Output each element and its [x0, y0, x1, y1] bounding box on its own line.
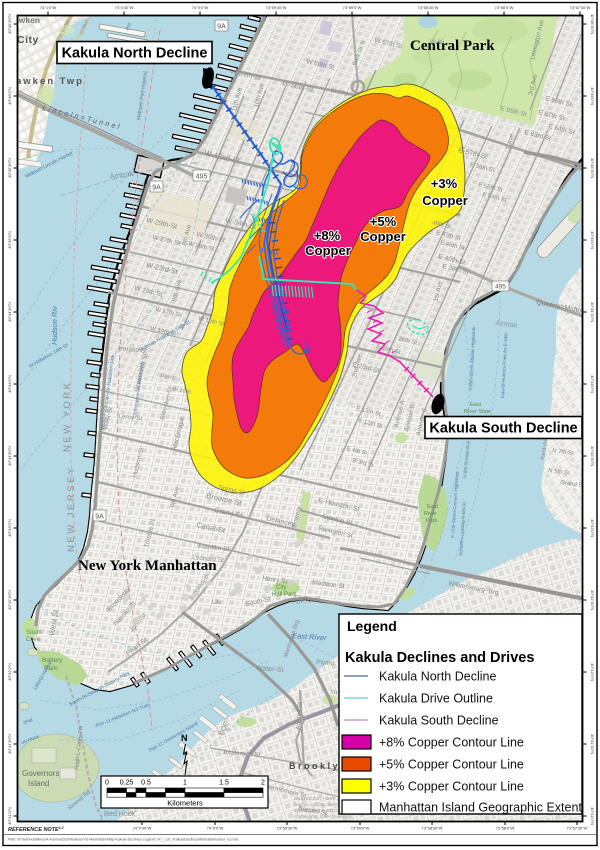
svg-text:40°45'30"N: 40°45'30"N [7, 158, 12, 178]
svg-text:Red Hook: Red Hook [104, 811, 136, 818]
svg-text:40°41'30"N: 40°41'30"N [590, 734, 595, 754]
svg-text:74°0'30"W: 74°0'30"W [133, 826, 152, 831]
svg-text:9A: 9A [152, 185, 161, 192]
svg-text:40°44'30"N: 40°44'30"N [590, 302, 595, 322]
svg-text:Hall Park: Hall Park [272, 592, 297, 598]
svg-text:40°43'0"N: 40°43'0"N [590, 519, 595, 537]
svg-text:40°42'0"N: 40°42'0"N [590, 663, 595, 681]
svg-text:40°42'0"N: 40°42'0"N [7, 663, 12, 681]
svg-text:Park: Park [426, 518, 438, 524]
svg-text:City: City [276, 585, 286, 591]
svg-text:+3% Copper Contour Line: +3% Copper Contour Line [379, 780, 524, 794]
svg-text:Copper: Copper [422, 193, 468, 208]
svg-text:Kakula North Decline: Kakula North Decline [62, 46, 208, 62]
svg-text:Kilometers: Kilometers [167, 799, 203, 808]
svg-text:East: East [470, 402, 481, 408]
svg-text:Sources: Esri, HERE: Sources: Esri, HERE [294, 796, 336, 801]
svg-text:REFERENCE NOTE1,2: REFERENCE NOTE1,2 [8, 826, 64, 833]
svg-text:40°41'30"N: 40°41'30"N [7, 734, 12, 754]
svg-text:East: East [427, 504, 438, 510]
svg-text:Kakula Declines and Drives: Kakula Declines and Drives [345, 650, 534, 666]
svg-text:+5%: +5% [370, 214, 397, 229]
svg-text:1: 1 [183, 780, 187, 787]
svg-text:Central Park: Central Park [410, 38, 495, 54]
svg-text:73°59'30"W: 73°59'30"W [277, 826, 298, 831]
svg-text:Legend: Legend [347, 618, 397, 634]
svg-text:0.25: 0.25 [120, 780, 134, 787]
svg-text:Kakula Drive Outline: Kakula Drive Outline [379, 692, 493, 706]
svg-text:495: 495 [196, 174, 208, 181]
svg-text:73°59'0"W: 73°59'0"W [351, 826, 370, 831]
svg-text:+8% Copper Contour Line: +8% Copper Contour Line [379, 736, 524, 750]
svg-text:Garmin, USGS, Intermap: Garmin, USGS, Intermap [294, 802, 345, 807]
svg-text:40°44'0"N: 40°44'0"N [590, 375, 595, 393]
svg-text:40°46'30"N: 40°46'30"N [590, 14, 595, 34]
svg-text:N: N [181, 733, 188, 743]
svg-text:40°43'30"N: 40°43'30"N [7, 446, 12, 466]
svg-text:Kakula North Decline: Kakula North Decline [379, 670, 496, 684]
svg-text:73°57'30"W: 73°57'30"W [567, 826, 588, 831]
svg-text:NEW JERSEY: NEW JERSEY [66, 465, 77, 552]
svg-text:Copper: Copper [305, 243, 351, 258]
svg-text:73°59'30"W: 73°59'30"W [266, 5, 287, 10]
svg-text:40°44'0"N: 40°44'0"N [7, 375, 12, 393]
svg-text:40°42'30"N: 40°42'30"N [7, 590, 12, 610]
svg-text:+5% Copper Contour Line: +5% Copper Contour Line [379, 758, 524, 772]
svg-text:Path: W:\IvanhoeMines\A-Kamoa\: Path: W:\IvanhoeMines\A-Kamoa\2020\Kakul… [8, 838, 238, 842]
svg-text:74°0'30"W: 74°0'30"W [115, 5, 134, 10]
svg-text:40°42'30"N: 40°42'30"N [590, 590, 595, 610]
svg-text:awken Twp: awken Twp [16, 76, 84, 87]
svg-text:40°45'0"N: 40°45'0"N [7, 231, 12, 249]
svg-text:495: 495 [495, 284, 506, 291]
svg-text:73°58'0"W: 73°58'0"W [495, 5, 514, 10]
svg-text:73°58'30"W: 73°58'30"W [422, 826, 443, 831]
svg-text:73°58'0"W: 73°58'0"W [496, 826, 515, 831]
svg-text:River: River [424, 511, 437, 517]
svg-text:74°0'0"W: 74°0'0"W [207, 826, 224, 831]
svg-text:Kakula South Decline: Kakula South Decline [379, 714, 499, 728]
svg-text:Yo: Yo [330, 689, 338, 696]
svg-text:Copper: Copper [360, 229, 406, 244]
svg-text:Plymo: Plymo [316, 659, 335, 667]
svg-text:0: 0 [105, 780, 109, 787]
svg-text:40°43'0"N: 40°43'0"N [7, 519, 12, 537]
svg-text:40°46'0"N: 40°46'0"N [590, 87, 595, 105]
svg-text:+8%: +8% [314, 228, 341, 243]
svg-text:Kakula South Decline: Kakula South Decline [429, 421, 577, 437]
svg-text:40°45'30"N: 40°45'30"N [590, 158, 595, 178]
svg-text:74°0'0"W: 74°0'0"W [192, 5, 209, 10]
svg-text:40°43'30"N: 40°43'30"N [590, 446, 595, 466]
svg-text:9A: 9A [95, 514, 104, 521]
svg-text:73°57'30"W: 73°57'30"W [570, 5, 591, 10]
svg-text:40°45'0"N: 40°45'0"N [590, 231, 595, 249]
svg-text:Cove: Cove [26, 637, 41, 643]
svg-text:0.5: 0.5 [141, 780, 151, 787]
svg-text:+3%: +3% [431, 176, 458, 191]
svg-text:South: South [26, 630, 42, 636]
svg-text:40°41'0"N: 40°41'0"N [590, 807, 595, 825]
svg-text:Manhattan Island Geographic Ex: Manhattan Island Geographic Extent [379, 801, 582, 815]
svg-text:2: 2 [261, 780, 265, 787]
svg-text:NEW YORK: NEW YORK [62, 380, 73, 452]
svg-text:74°1'0"W: 74°1'0"W [40, 5, 57, 10]
svg-text:9A: 9A [217, 24, 226, 31]
svg-text:contributors, GIS-community: contributors, GIS-community [294, 814, 352, 819]
svg-text:Hudson Riv: Hudson Riv [50, 305, 59, 345]
svg-text:73°59'0"W: 73°59'0"W [343, 5, 362, 10]
svg-text:City: City [17, 34, 39, 46]
svg-text:40°46'0"N: 40°46'0"N [7, 87, 12, 105]
svg-text:40°44'30"N: 40°44'30"N [7, 302, 12, 322]
svg-text:73°58'30"W: 73°58'30"W [418, 5, 439, 10]
svg-text:40°46'30"N: 40°46'30"N [7, 14, 12, 34]
svg-text:River State: River State [464, 409, 491, 415]
svg-text:Life: Life [212, 600, 222, 606]
svg-text:W-86: W-86 [430, 40, 445, 46]
svg-text:Island: Island [28, 779, 49, 788]
svg-text:40°41'0"N: 40°41'0"N [7, 807, 12, 825]
svg-text:Governors: Governors [22, 769, 59, 778]
svg-text:1.5: 1.5 [219, 780, 229, 787]
